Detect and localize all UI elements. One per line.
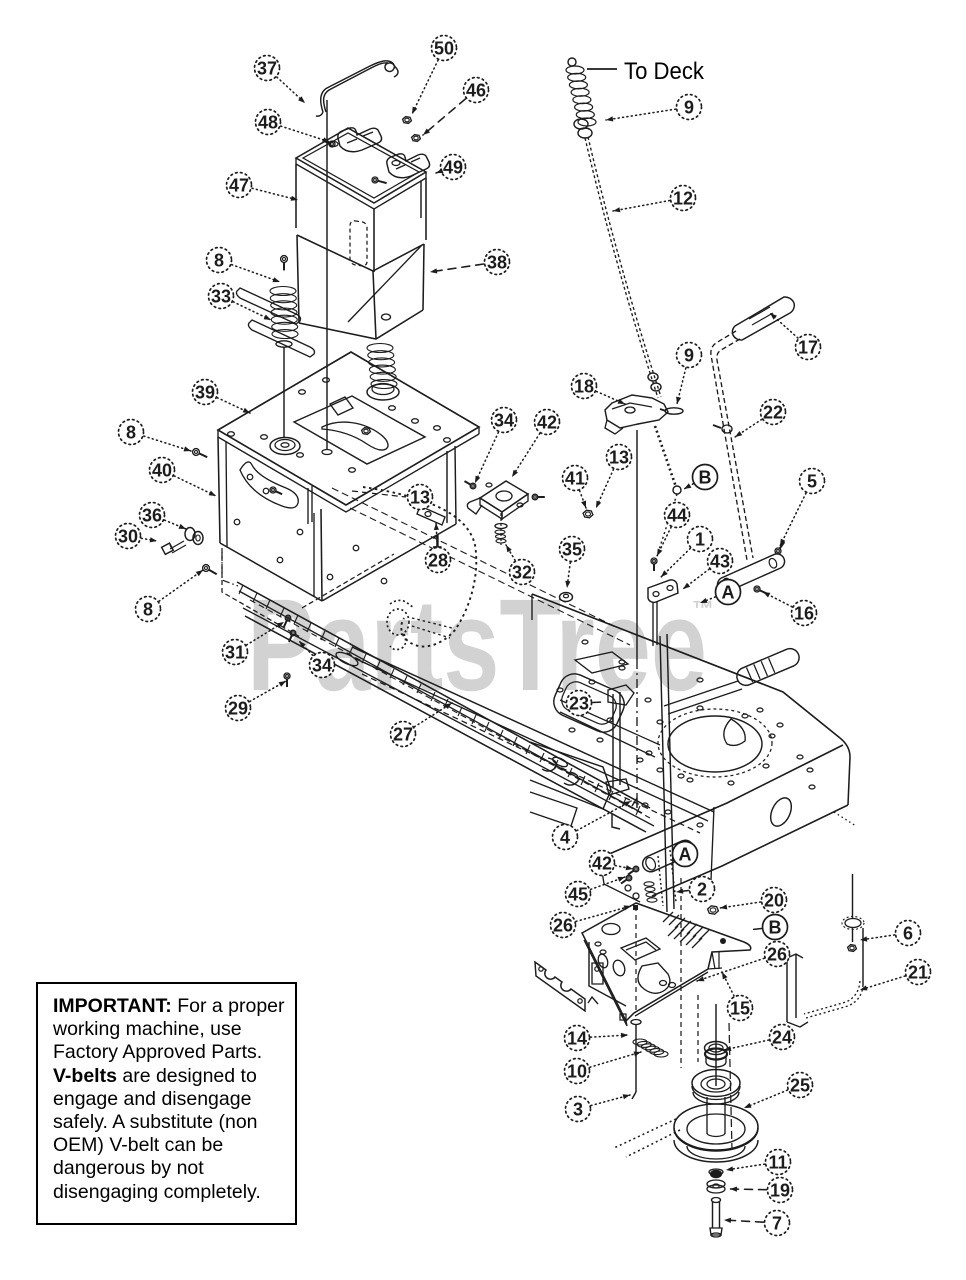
svg-text:36: 36 — [142, 506, 162, 526]
svg-text:41: 41 — [565, 469, 585, 489]
svg-text:A: A — [722, 583, 735, 603]
svg-text:42: 42 — [537, 413, 557, 433]
svg-text:13: 13 — [609, 448, 629, 468]
svg-text:1: 1 — [695, 530, 705, 550]
svg-text:20: 20 — [764, 891, 784, 911]
svg-text:10: 10 — [567, 1062, 587, 1082]
svg-text:8: 8 — [126, 423, 136, 443]
svg-text:46: 46 — [466, 81, 486, 101]
svg-text:34: 34 — [494, 411, 514, 431]
svg-text:50: 50 — [434, 39, 454, 59]
svg-text:18: 18 — [574, 377, 594, 397]
svg-text:2: 2 — [697, 880, 707, 900]
svg-text:19: 19 — [770, 1181, 790, 1201]
svg-text:16: 16 — [794, 604, 814, 624]
svg-text:32: 32 — [512, 563, 532, 583]
svg-text:37: 37 — [257, 59, 277, 79]
svg-text:17: 17 — [798, 338, 818, 358]
svg-text:45: 45 — [568, 885, 588, 905]
svg-text:30: 30 — [118, 527, 138, 547]
svg-text:9: 9 — [684, 346, 694, 366]
svg-text:To Deck: To Deck — [624, 58, 705, 85]
svg-text:A: A — [679, 845, 692, 865]
svg-text:49: 49 — [443, 158, 463, 178]
svg-text:26: 26 — [553, 916, 573, 936]
svg-text:33: 33 — [211, 287, 231, 307]
svg-text:B: B — [699, 468, 712, 488]
svg-text:44: 44 — [667, 506, 687, 526]
svg-text:14: 14 — [567, 1029, 587, 1049]
svg-text:5: 5 — [807, 472, 817, 492]
svg-text:3: 3 — [573, 1100, 583, 1120]
svg-text:26: 26 — [767, 945, 787, 965]
svg-text:38: 38 — [487, 253, 507, 273]
svg-text:6: 6 — [903, 924, 913, 944]
svg-text:4: 4 — [560, 828, 570, 848]
svg-text:8: 8 — [143, 600, 153, 620]
svg-text:21: 21 — [908, 963, 928, 983]
svg-text:8: 8 — [214, 251, 224, 271]
svg-text:23: 23 — [569, 694, 589, 714]
svg-text:47: 47 — [229, 176, 249, 196]
svg-text:29: 29 — [228, 699, 248, 719]
svg-text:31: 31 — [225, 643, 245, 663]
svg-text:24: 24 — [772, 1028, 792, 1048]
svg-text:7: 7 — [772, 1214, 782, 1234]
svg-text:34: 34 — [312, 656, 332, 676]
svg-text:35: 35 — [562, 540, 582, 560]
svg-text:42: 42 — [592, 854, 612, 874]
svg-text:39: 39 — [195, 383, 215, 403]
svg-text:PartsTree: PartsTree — [247, 571, 707, 718]
svg-text:27: 27 — [393, 725, 413, 745]
svg-text:48: 48 — [258, 113, 278, 133]
svg-text:™: ™ — [692, 596, 714, 621]
svg-text:25: 25 — [790, 1076, 810, 1096]
svg-text:9: 9 — [684, 98, 694, 118]
svg-text:12: 12 — [673, 189, 693, 209]
svg-text:28: 28 — [428, 551, 448, 571]
svg-text:40: 40 — [152, 461, 172, 481]
svg-text:43: 43 — [710, 552, 730, 572]
svg-text:11: 11 — [768, 1153, 787, 1173]
svg-text:15: 15 — [730, 999, 750, 1019]
svg-text:22: 22 — [763, 403, 783, 423]
svg-text:B: B — [769, 918, 782, 938]
svg-text:13: 13 — [410, 488, 430, 508]
